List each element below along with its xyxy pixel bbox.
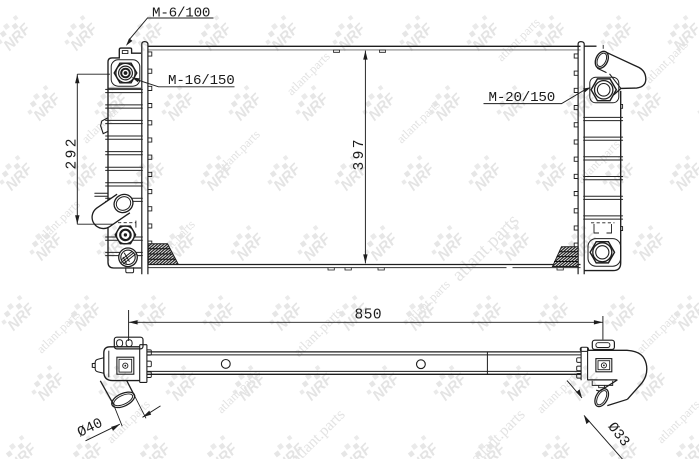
svg-text:M-6/100: M-6/100 bbox=[152, 6, 210, 22]
svg-text:850: 850 bbox=[355, 308, 383, 324]
svg-text:M-20/150: M-20/150 bbox=[489, 90, 556, 106]
svg-text:292: 292 bbox=[64, 136, 80, 169]
svg-text:397: 397 bbox=[352, 137, 368, 170]
svg-text:M-16/150: M-16/150 bbox=[168, 73, 235, 89]
